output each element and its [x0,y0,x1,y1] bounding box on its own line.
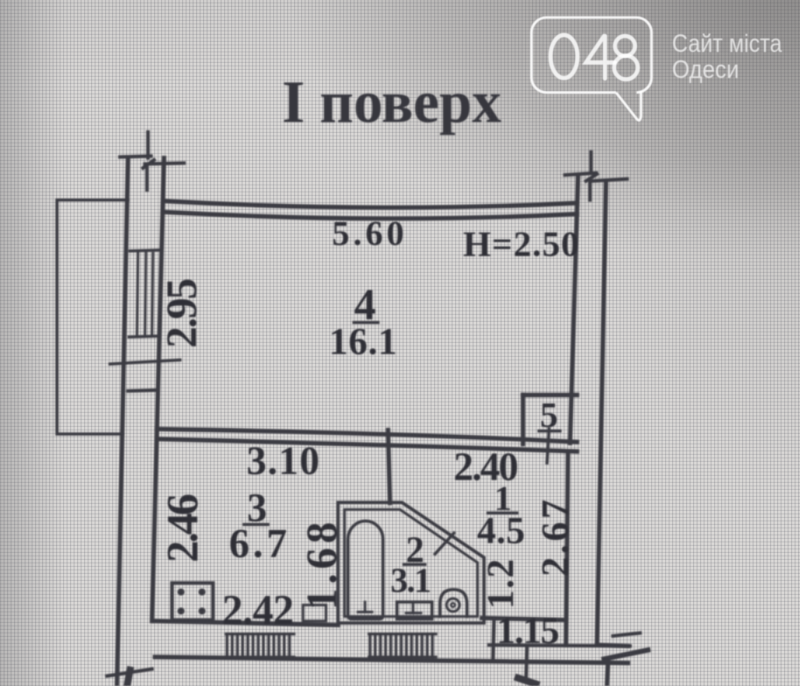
svg-text:3.1: 3.1 [391,561,432,600]
svg-text:6.7: 6.7 [229,520,287,566]
svg-text:2.46: 2.46 [158,494,207,563]
svg-text:1.2: 1.2 [480,559,522,609]
svg-text:Сайт міста: Сайт міста [672,30,782,58]
svg-text:5: 5 [540,395,558,435]
svg-text:1.68: 1.68 [299,522,346,610]
svg-text:1.15: 1.15 [497,610,560,652]
svg-text:4.5: 4.5 [477,510,525,552]
svg-text:5.60: 5.60 [332,214,404,253]
svg-text:2.42: 2.42 [222,588,294,634]
svg-text:16.1: 16.1 [329,321,397,363]
svg-text:Одеси: Одеси [672,56,739,84]
svg-text:Н=2.50: Н=2.50 [463,224,579,264]
svg-text:2.95: 2.95 [159,278,206,348]
svg-text:2.67: 2.67 [534,500,577,577]
svg-text:3.10: 3.10 [247,438,320,483]
